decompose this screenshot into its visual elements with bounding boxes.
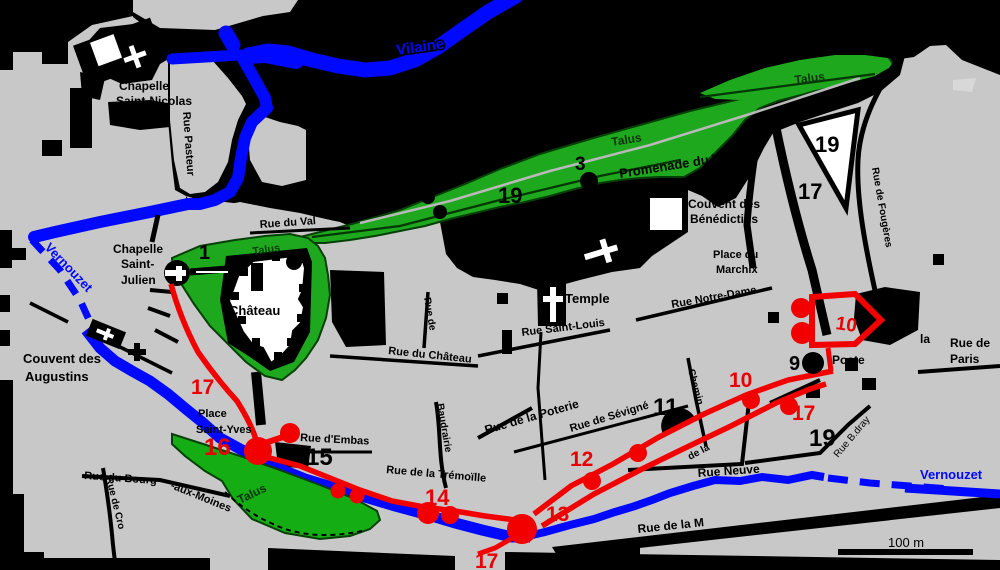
svg-text:19: 19 — [815, 132, 839, 157]
svg-text:Vernouzet: Vernouzet — [920, 467, 983, 482]
svg-text:Paris: Paris — [950, 352, 980, 366]
svg-text:10: 10 — [834, 313, 858, 337]
svg-text:100 m: 100 m — [888, 535, 924, 550]
svg-text:Temple: Temple — [565, 291, 610, 306]
svg-text:17: 17 — [191, 376, 214, 399]
svg-text:13: 13 — [546, 503, 569, 526]
svg-text:Saint-: Saint- — [121, 257, 154, 271]
svg-text:Bénédictins: Bénédictins — [690, 212, 758, 226]
svg-text:1: 1 — [199, 242, 210, 264]
svg-text:Chapelle: Chapelle — [113, 242, 163, 256]
svg-text:Marchix: Marchix — [716, 264, 758, 276]
svg-text:19: 19 — [498, 183, 522, 208]
svg-text:la: la — [920, 332, 930, 346]
svg-text:9: 9 — [789, 353, 800, 375]
svg-text:Julien: Julien — [121, 273, 156, 287]
svg-text:Poste: Poste — [832, 353, 865, 367]
svg-text:11: 11 — [653, 394, 678, 421]
svg-text:15: 15 — [306, 444, 333, 471]
svg-text:19: 19 — [809, 425, 836, 452]
svg-text:Couvent des: Couvent des — [23, 351, 101, 366]
svg-text:17: 17 — [792, 402, 815, 425]
svg-text:10: 10 — [729, 369, 752, 392]
svg-text:Place du: Place du — [713, 249, 758, 261]
svg-text:Chapelle: Chapelle — [119, 79, 169, 93]
svg-text:16: 16 — [204, 434, 231, 461]
svg-text:17: 17 — [475, 550, 498, 570]
svg-text:12: 12 — [570, 448, 593, 471]
svg-text:Château: Château — [229, 303, 280, 318]
svg-text:3: 3 — [575, 154, 586, 175]
svg-text:Couvent des: Couvent des — [688, 197, 760, 211]
svg-text:17: 17 — [798, 179, 822, 204]
svg-text:14: 14 — [425, 485, 450, 510]
svg-text:Place: Place — [198, 408, 227, 420]
svg-text:Augustins: Augustins — [25, 369, 89, 384]
svg-text:Saint-Nicolas: Saint-Nicolas — [116, 94, 192, 108]
svg-text:Rue de: Rue de — [950, 336, 990, 350]
